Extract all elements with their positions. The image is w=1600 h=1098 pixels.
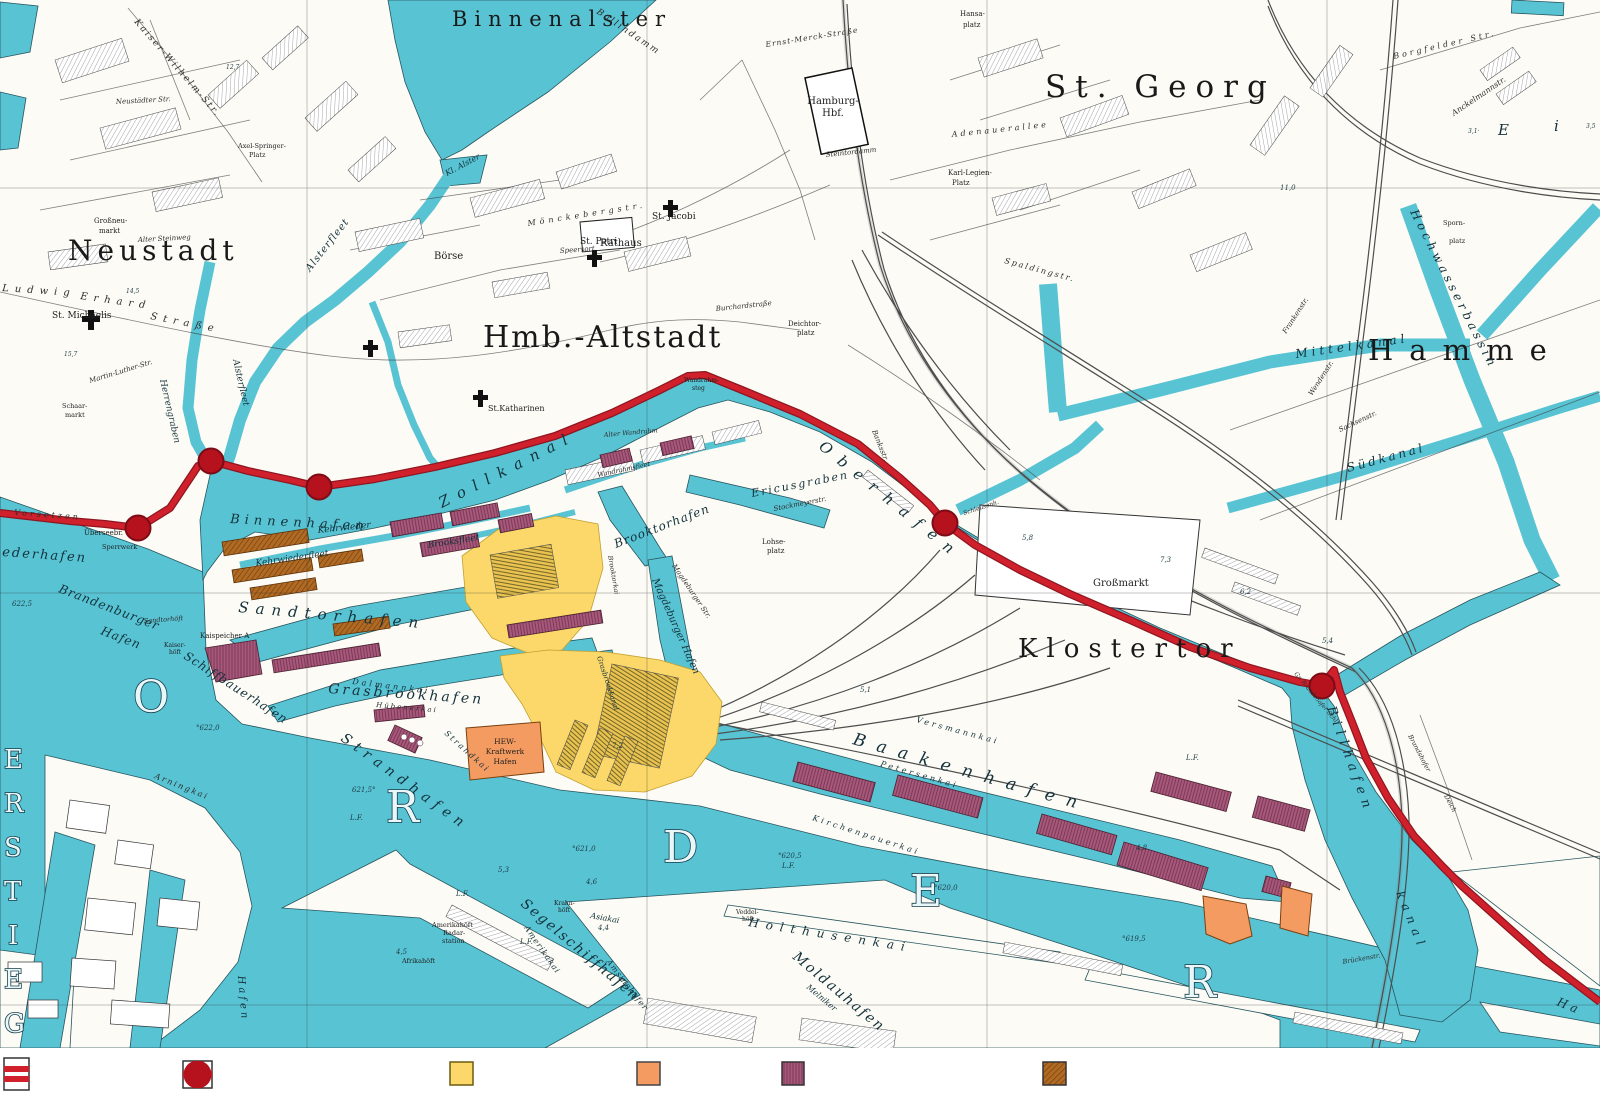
map-label: platz [767, 547, 785, 555]
map-label: °622,0 [196, 724, 220, 732]
map-label: Amerikahöft [431, 921, 473, 929]
map-label: 622,5 [12, 600, 33, 608]
map-label: °620,5 [778, 852, 802, 860]
map-label: °619,5 [1122, 935, 1146, 943]
legend-swatch-route-station [183, 1061, 212, 1089]
map-label: 5,4 [1322, 637, 1333, 645]
map-label: 621,5° [352, 786, 376, 794]
river-letter: O [133, 672, 169, 723]
map-label: Sporn- [1443, 219, 1465, 227]
map-label: markt [65, 411, 85, 419]
edge-letter: R [4, 789, 25, 819]
map-label: St. Jacobi [652, 212, 696, 222]
map-label: St. Michaelis [52, 311, 112, 321]
map-label: Afrikahöft [401, 957, 435, 965]
map-label: 4,6 [585, 878, 598, 886]
map-label: Platz [249, 151, 266, 159]
map-label: °621,0 [572, 845, 596, 853]
route-station-dot [126, 516, 151, 541]
map-label: L.F. [455, 890, 469, 898]
map-label: 4,4 [597, 924, 609, 932]
map-label: E [1497, 121, 1509, 139]
map-label: station [442, 937, 465, 945]
map-label: 3,1· [1468, 128, 1480, 135]
map-label: steg [692, 385, 705, 392]
route-station-dot [307, 475, 332, 500]
water-sonninkanal [1048, 284, 1058, 412]
map-label: St. Georg [1045, 69, 1276, 105]
map-label: 6,2 [1240, 588, 1252, 596]
map-label: Platz [952, 179, 970, 187]
map-label: höft [742, 916, 755, 923]
map-label: Karl-Legien- [948, 169, 993, 177]
map-label: L.F. [781, 862, 795, 870]
map-label: Sperrwerk [102, 543, 137, 551]
map-screenshot: BinnenalsterNeustadtSt. GeorgHmb.-Altsta… [0, 0, 1600, 1098]
map-label: Großmarkt [1093, 578, 1149, 589]
map-label: platz [963, 21, 981, 29]
map-label: 7,3 [1160, 556, 1172, 564]
map-label: Schaar- [62, 402, 87, 410]
map-label: 4,8 [1135, 844, 1148, 852]
edge-letter: E [4, 965, 23, 995]
map-label: Hafen [493, 757, 516, 766]
map-label: L.F. [1185, 754, 1199, 762]
river-letter: R [386, 782, 421, 833]
legend-swatch-area-brown [1043, 1062, 1066, 1085]
map-label: höft [558, 907, 571, 914]
map-label: 4,5 [395, 948, 408, 956]
map-label: 14,5 [126, 288, 140, 295]
map-label: 11,0 [1280, 184, 1296, 192]
map-label: Klostertor [1018, 634, 1242, 664]
edge-letter: G [4, 1009, 25, 1039]
map-label: Lohse- [762, 538, 786, 546]
map-label: 5,3 [498, 866, 510, 874]
map-label: Hmb.-Altstadt [483, 320, 722, 355]
map-label: Großneu- [94, 217, 128, 225]
map-label: Börse [434, 251, 463, 262]
map-label: 12,7 [226, 64, 240, 71]
map-label: Krahn- [554, 900, 575, 907]
map-label: 7,2 [612, 742, 624, 750]
map-label: Radar- [443, 929, 465, 937]
map-label: Kaiser- [164, 642, 186, 649]
legend-swatch-route-line [4, 1058, 29, 1090]
map-label: St.Katharinen [488, 404, 545, 413]
river-letter: R [1183, 957, 1218, 1008]
map-label: Axel-Springer- [237, 142, 286, 150]
map-label: L.F. [349, 814, 363, 822]
edge-letter: S [4, 833, 22, 863]
map-label: Wandrahm- [684, 377, 719, 384]
map-label: Veddel- [735, 909, 759, 916]
map-label: Hamburg- [807, 96, 859, 107]
edge-letter: E [4, 745, 23, 775]
map-label: Kraftwerk [486, 747, 525, 756]
map-label: i [1554, 117, 1559, 135]
edge-letter: T [4, 877, 22, 907]
map-label: L.F. [519, 938, 533, 946]
river-letter: D [663, 822, 698, 873]
river-letter: E [910, 866, 942, 917]
map-label: Überseebr. [84, 528, 123, 537]
legend-swatch-area-purple [782, 1062, 804, 1085]
map-label: höft [169, 649, 182, 656]
map-label: Deichtor- [788, 320, 822, 328]
edge-letter: I [8, 921, 18, 951]
legend-swatch-area-yellow [450, 1062, 473, 1085]
map-label: Hbf. [822, 108, 844, 119]
map-label: HEW- [494, 737, 516, 746]
map-label: 5,1 [860, 686, 871, 694]
map-canvas: BinnenalsterNeustadtSt. GeorgHmb.-Altsta… [0, 0, 1600, 1098]
map-label: Binnenalster [452, 7, 672, 31]
map-label: 15,7 [64, 351, 78, 358]
map-label: 5,8 [1022, 534, 1034, 542]
legend-swatch-area-orange [637, 1062, 660, 1085]
map-label: platz [797, 329, 815, 337]
map-label: Kaispeicher A [200, 632, 250, 640]
route-station-dot [199, 449, 224, 474]
map-label: 3,5 [1586, 123, 1596, 130]
map-label: platz [1449, 237, 1466, 245]
map-label: Hansa- [960, 10, 986, 18]
map-label: markt [99, 227, 120, 235]
